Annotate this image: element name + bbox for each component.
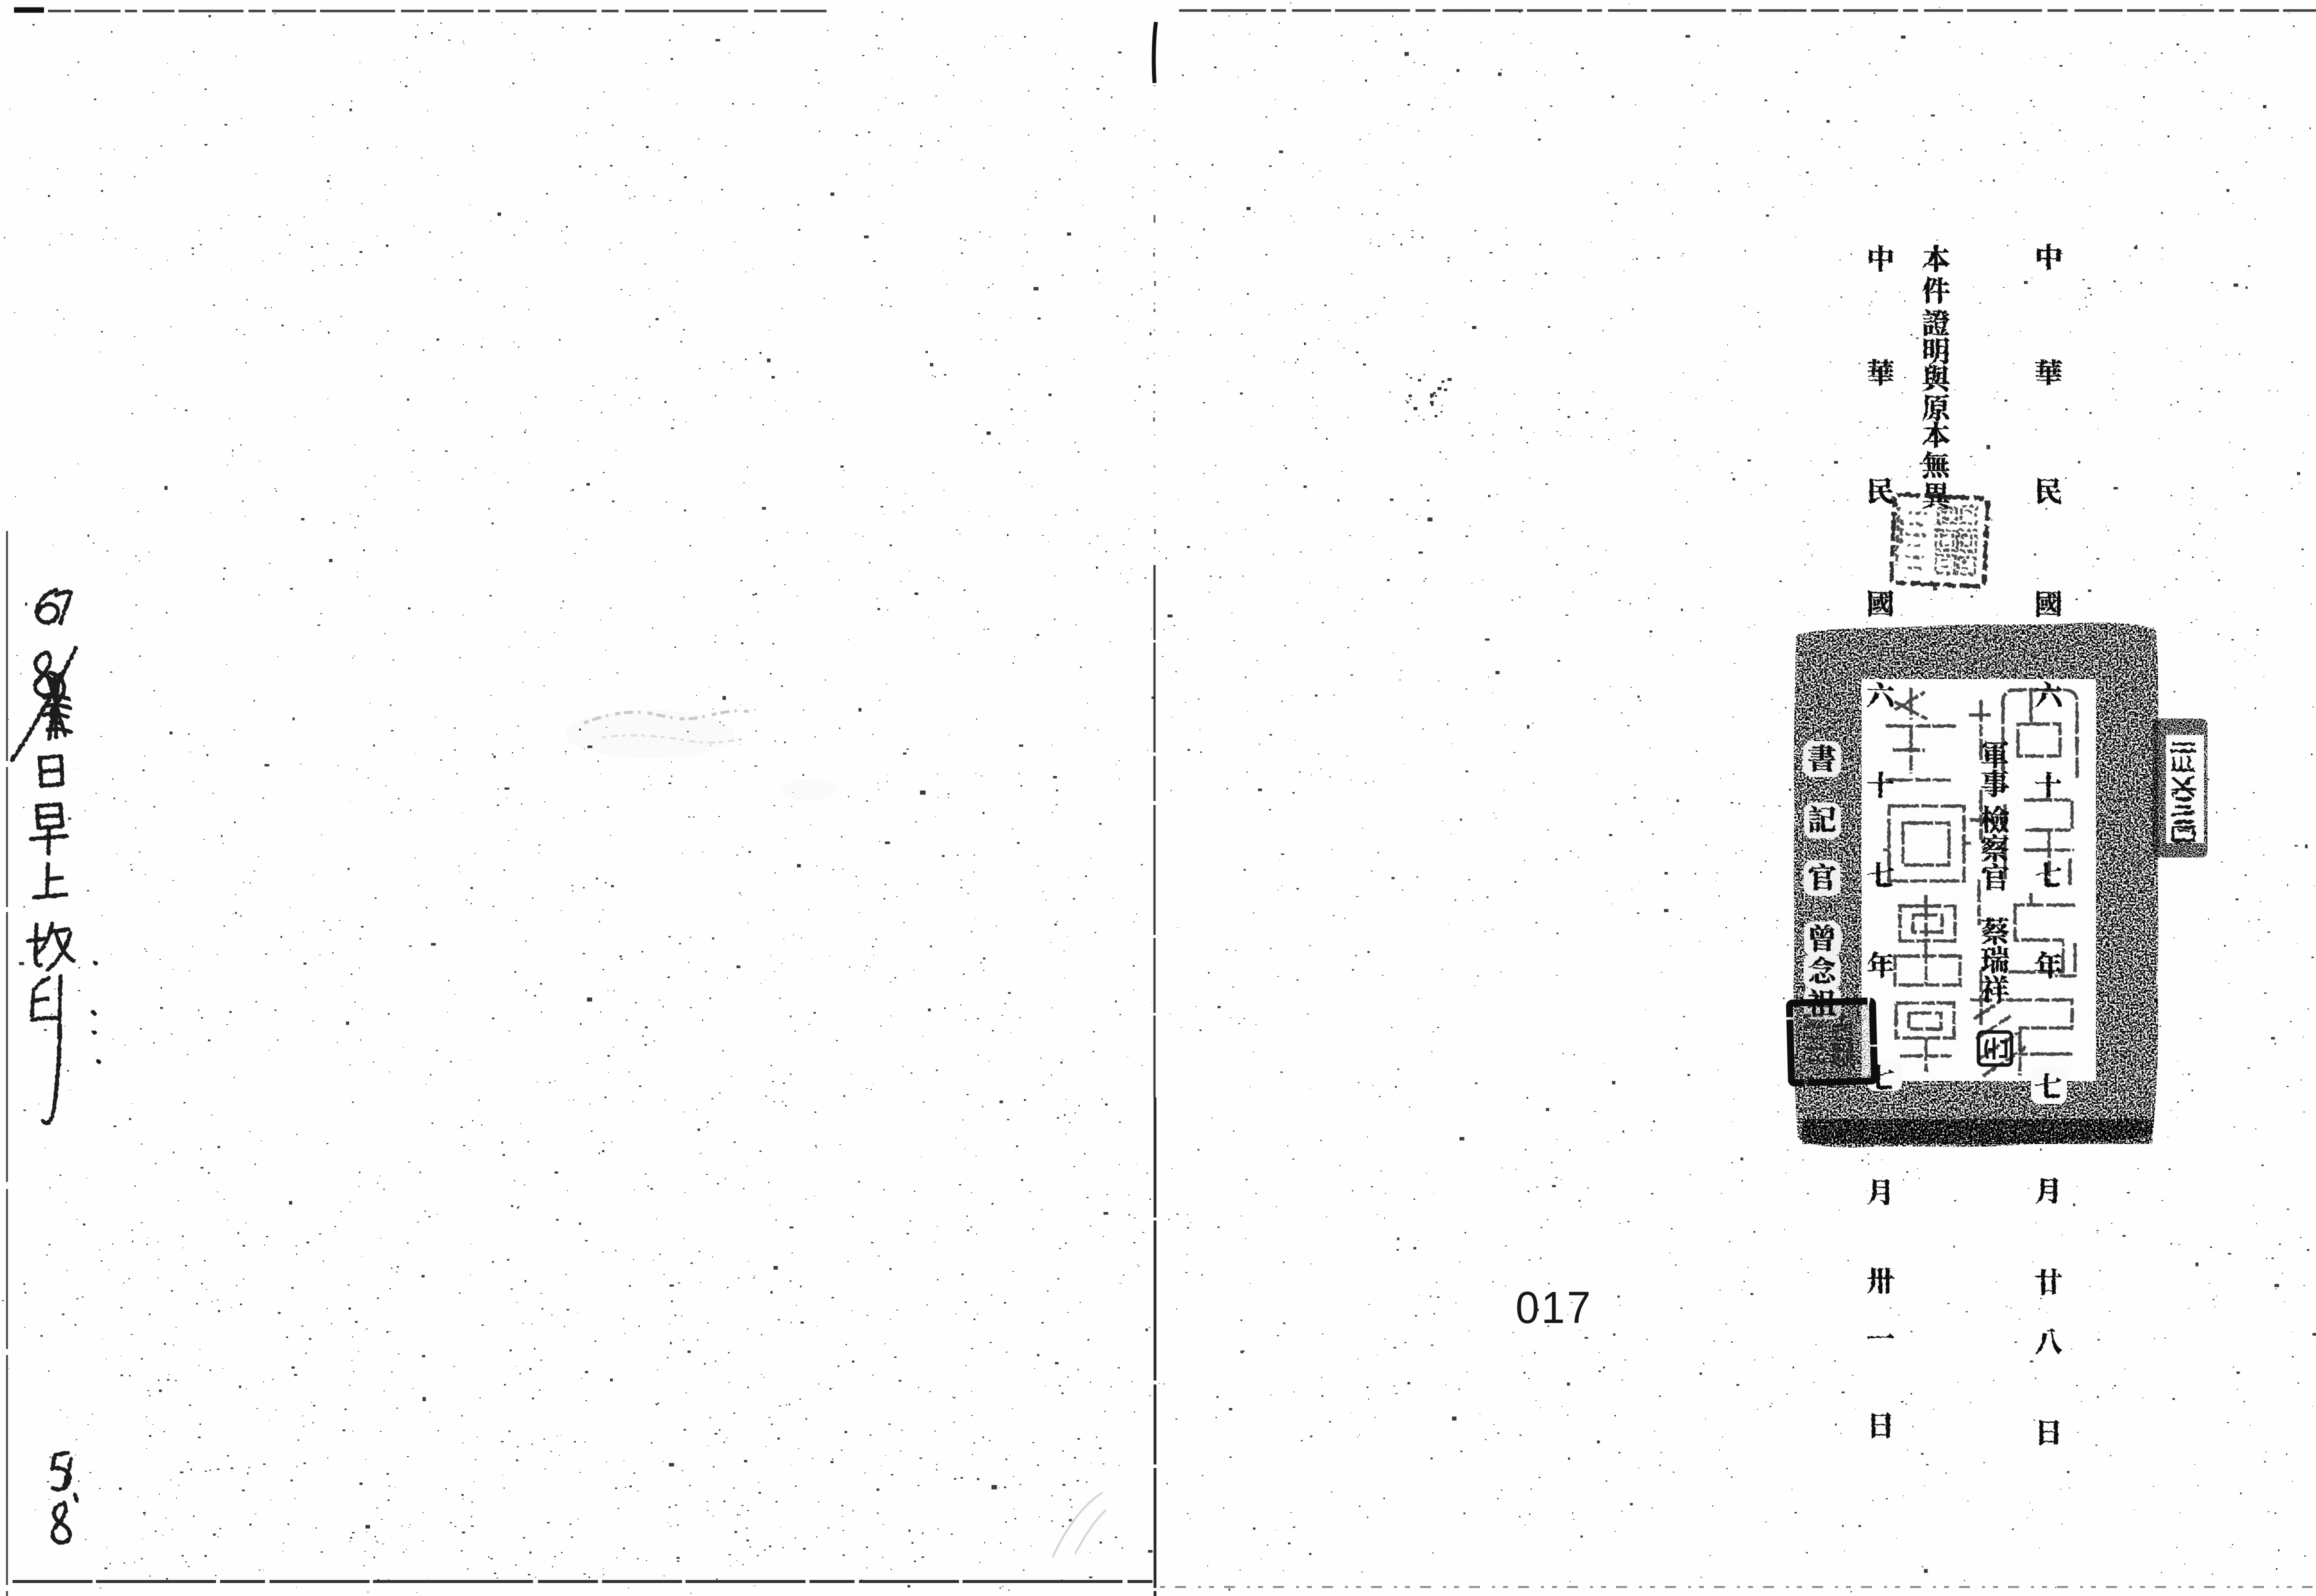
svg-text:017: 017 [1515, 1282, 1592, 1332]
